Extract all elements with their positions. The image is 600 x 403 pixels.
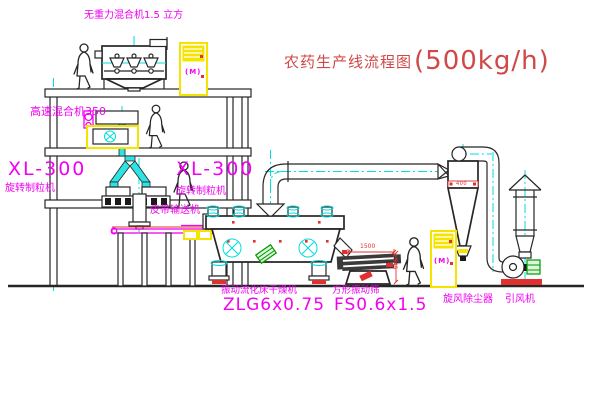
label-fan: 引风机: [505, 295, 535, 305]
label-granulator-right-model: XL-300: [176, 160, 254, 179]
label-cyclone: 旋风除尘器: [443, 295, 493, 305]
exhaust-duct: [257, 161, 449, 216]
dim-sieve-length: 1500: [360, 244, 375, 250]
gravity-free-mixer: [95, 37, 167, 91]
cabinet-top-mark: (M): [185, 69, 201, 76]
label-granulator-left-name: 旋转制粒机: [5, 184, 55, 194]
person-figure: [404, 238, 424, 285]
cabinet-right-mark: (M): [434, 258, 450, 265]
induced-draft-fan: [501, 256, 542, 285]
dim-cyclone-dia: 400: [456, 182, 467, 187]
label-sieve-model: FS0.6x1.5: [334, 297, 427, 314]
label-dryer-model: ZLG6x0.75: [223, 297, 325, 314]
person-figure: [147, 105, 165, 148]
title-text: 农药生产线流程图: [284, 51, 412, 72]
label-granulator-right-name: 旋转制粒机: [176, 187, 226, 197]
person-figure: [74, 44, 93, 89]
dim-sieve-height: 545: [391, 258, 397, 269]
granulator-left: [102, 187, 134, 207]
label-granulator-left-model: XL-300: [8, 160, 86, 179]
title-capacity: (500kg/h): [414, 46, 550, 76]
granulator-feed-pipes: [110, 156, 150, 187]
label-high-speed-mixer: 高速混合机350: [30, 106, 106, 117]
label-gravity-mixer: 无重力混合机1.5 立方: [84, 11, 183, 21]
page-title: 农药生产线流程图 (500kg/h): [284, 46, 550, 76]
flow-diagram-canvas: 农药生产线流程图 (500kg/h) 无重力混合机1.5 立方 高速混合机350…: [0, 0, 600, 403]
label-belt-conveyor: 皮带输送机: [150, 206, 200, 216]
